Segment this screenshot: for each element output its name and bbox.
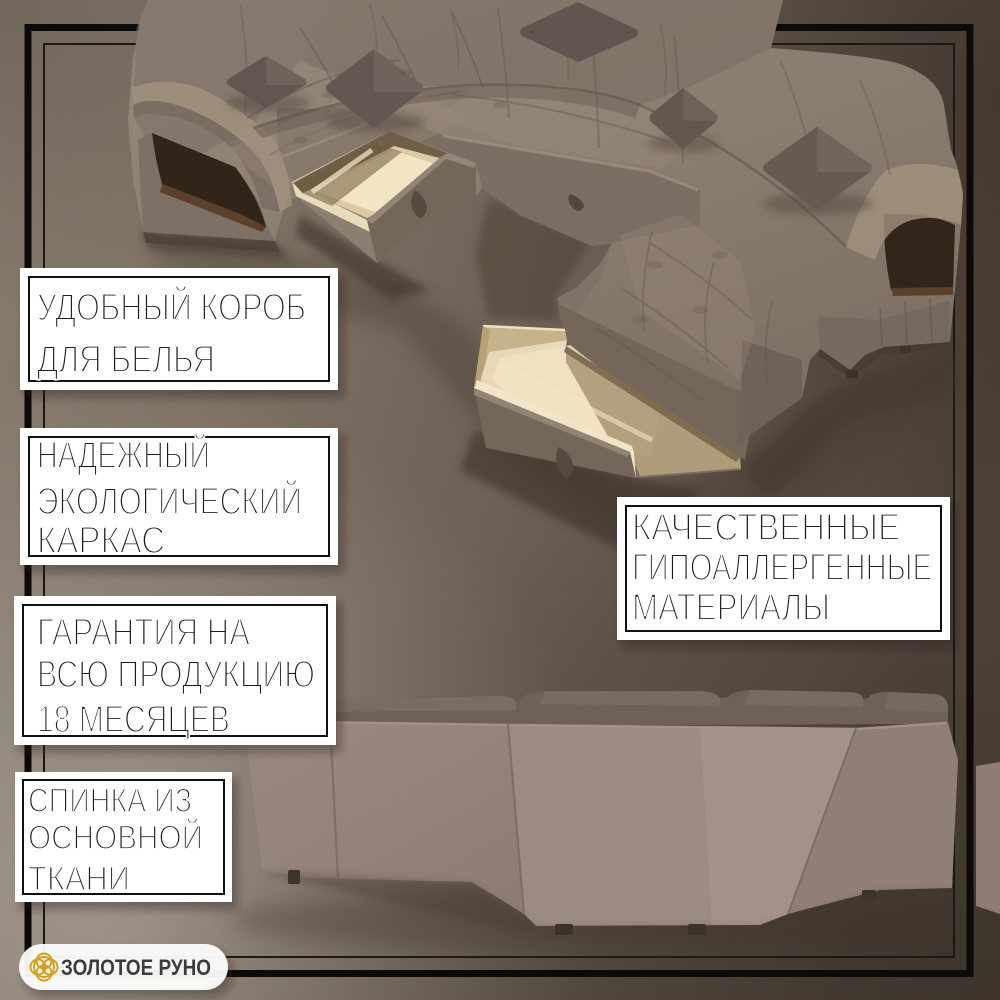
svg-text:18 МЕСЯЦЕВ: 18 МЕСЯЦЕВ <box>37 699 230 741</box>
svg-text:НАДЕЖНЫЙ: НАДЕЖНЫЙ <box>37 432 210 477</box>
svg-text:ВСЮ ПРОДУКЦИЮ: ВСЮ ПРОДУКЦИЮ <box>37 654 315 696</box>
svg-text:ЭКОЛОГИЧЕСКИЙ: ЭКОЛОГИЧЕСКИЙ <box>37 478 302 523</box>
svg-text:ТКАНИ: ТКАНИ <box>28 860 130 898</box>
svg-text:СПИНКА ИЗ: СПИНКА ИЗ <box>28 782 192 820</box>
svg-text:ГИПОАЛЛЕРГЕННЫЕ: ГИПОАЛЛЕРГЕННЫЕ <box>632 547 932 589</box>
svg-text:ГАРАНТИЯ НА: ГАРАНТИЯ НА <box>37 612 251 654</box>
svg-text:КАРКАС: КАРКАС <box>37 520 165 562</box>
svg-text:ОСНОВНОЙ: ОСНОВНОЙ <box>28 819 203 857</box>
svg-text:ДЛЯ БЕЛЬЯ: ДЛЯ БЕЛЬЯ <box>37 339 215 381</box>
svg-text:ЗОЛОТОЕ РУНО: ЗОЛОТОЕ РУНО <box>61 955 211 980</box>
svg-text:КАЧЕСТВЕННЫЕ: КАЧЕСТВЕННЫЕ <box>632 507 900 549</box>
svg-text:УДОБНЫЙ КОРОБ: УДОБНЫЙ КОРОБ <box>37 284 306 329</box>
svg-text:МАТЕРИАЛЫ: МАТЕРИАЛЫ <box>632 587 830 629</box>
